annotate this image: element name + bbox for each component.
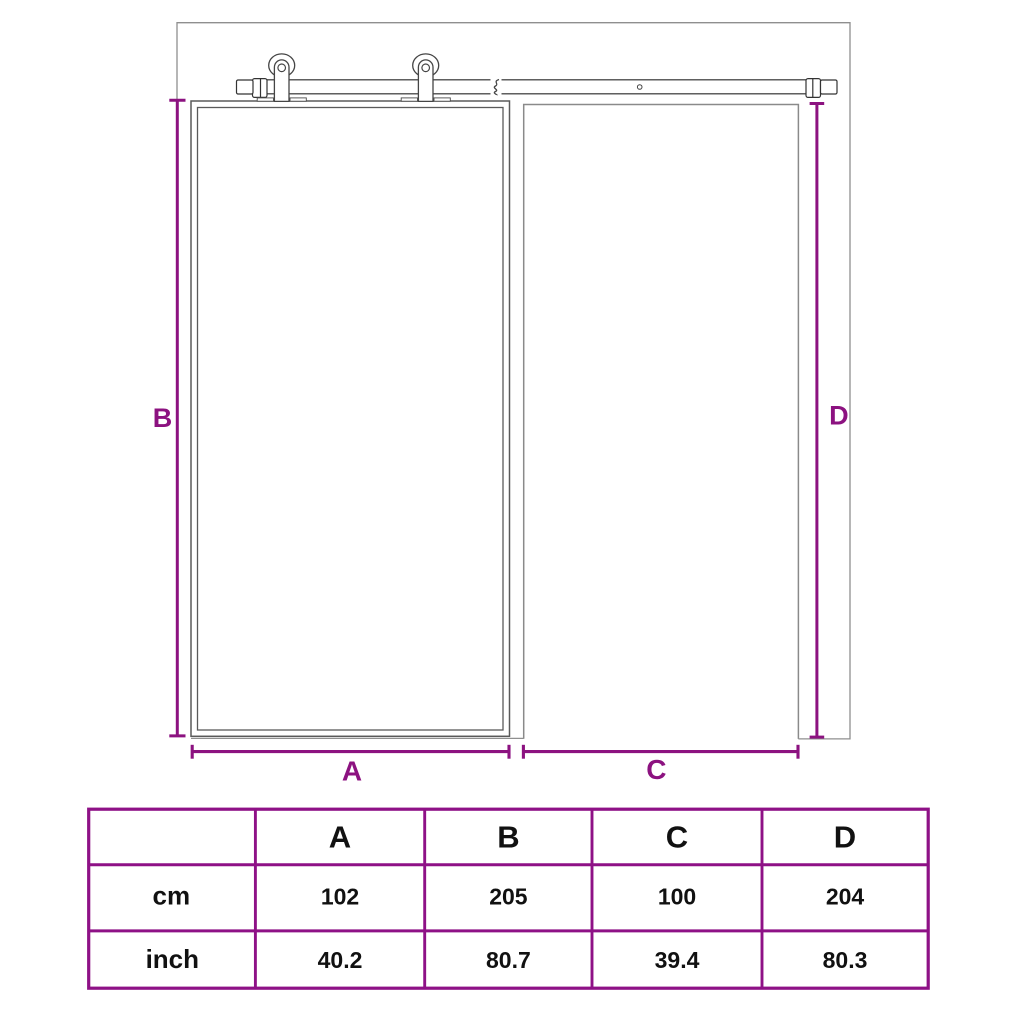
svg-text:C: C bbox=[646, 754, 666, 785]
svg-text:205: 205 bbox=[489, 884, 528, 910]
svg-text:102: 102 bbox=[321, 884, 359, 910]
svg-text:80.7: 80.7 bbox=[486, 947, 531, 973]
svg-text:C: C bbox=[666, 819, 688, 854]
svg-text:39.4: 39.4 bbox=[655, 947, 700, 973]
svg-text:inch: inch bbox=[146, 944, 199, 974]
svg-text:B: B bbox=[497, 819, 519, 854]
svg-text:80.3: 80.3 bbox=[823, 947, 868, 973]
svg-text:D: D bbox=[834, 819, 856, 854]
svg-text:100: 100 bbox=[658, 884, 696, 910]
svg-text:A: A bbox=[329, 819, 351, 854]
svg-text:cm: cm bbox=[153, 881, 191, 911]
svg-text:204: 204 bbox=[826, 884, 865, 910]
svg-text:A: A bbox=[342, 756, 362, 787]
svg-text:B: B bbox=[153, 403, 173, 433]
svg-text:40.2: 40.2 bbox=[318, 947, 363, 973]
svg-text:D: D bbox=[829, 401, 849, 431]
